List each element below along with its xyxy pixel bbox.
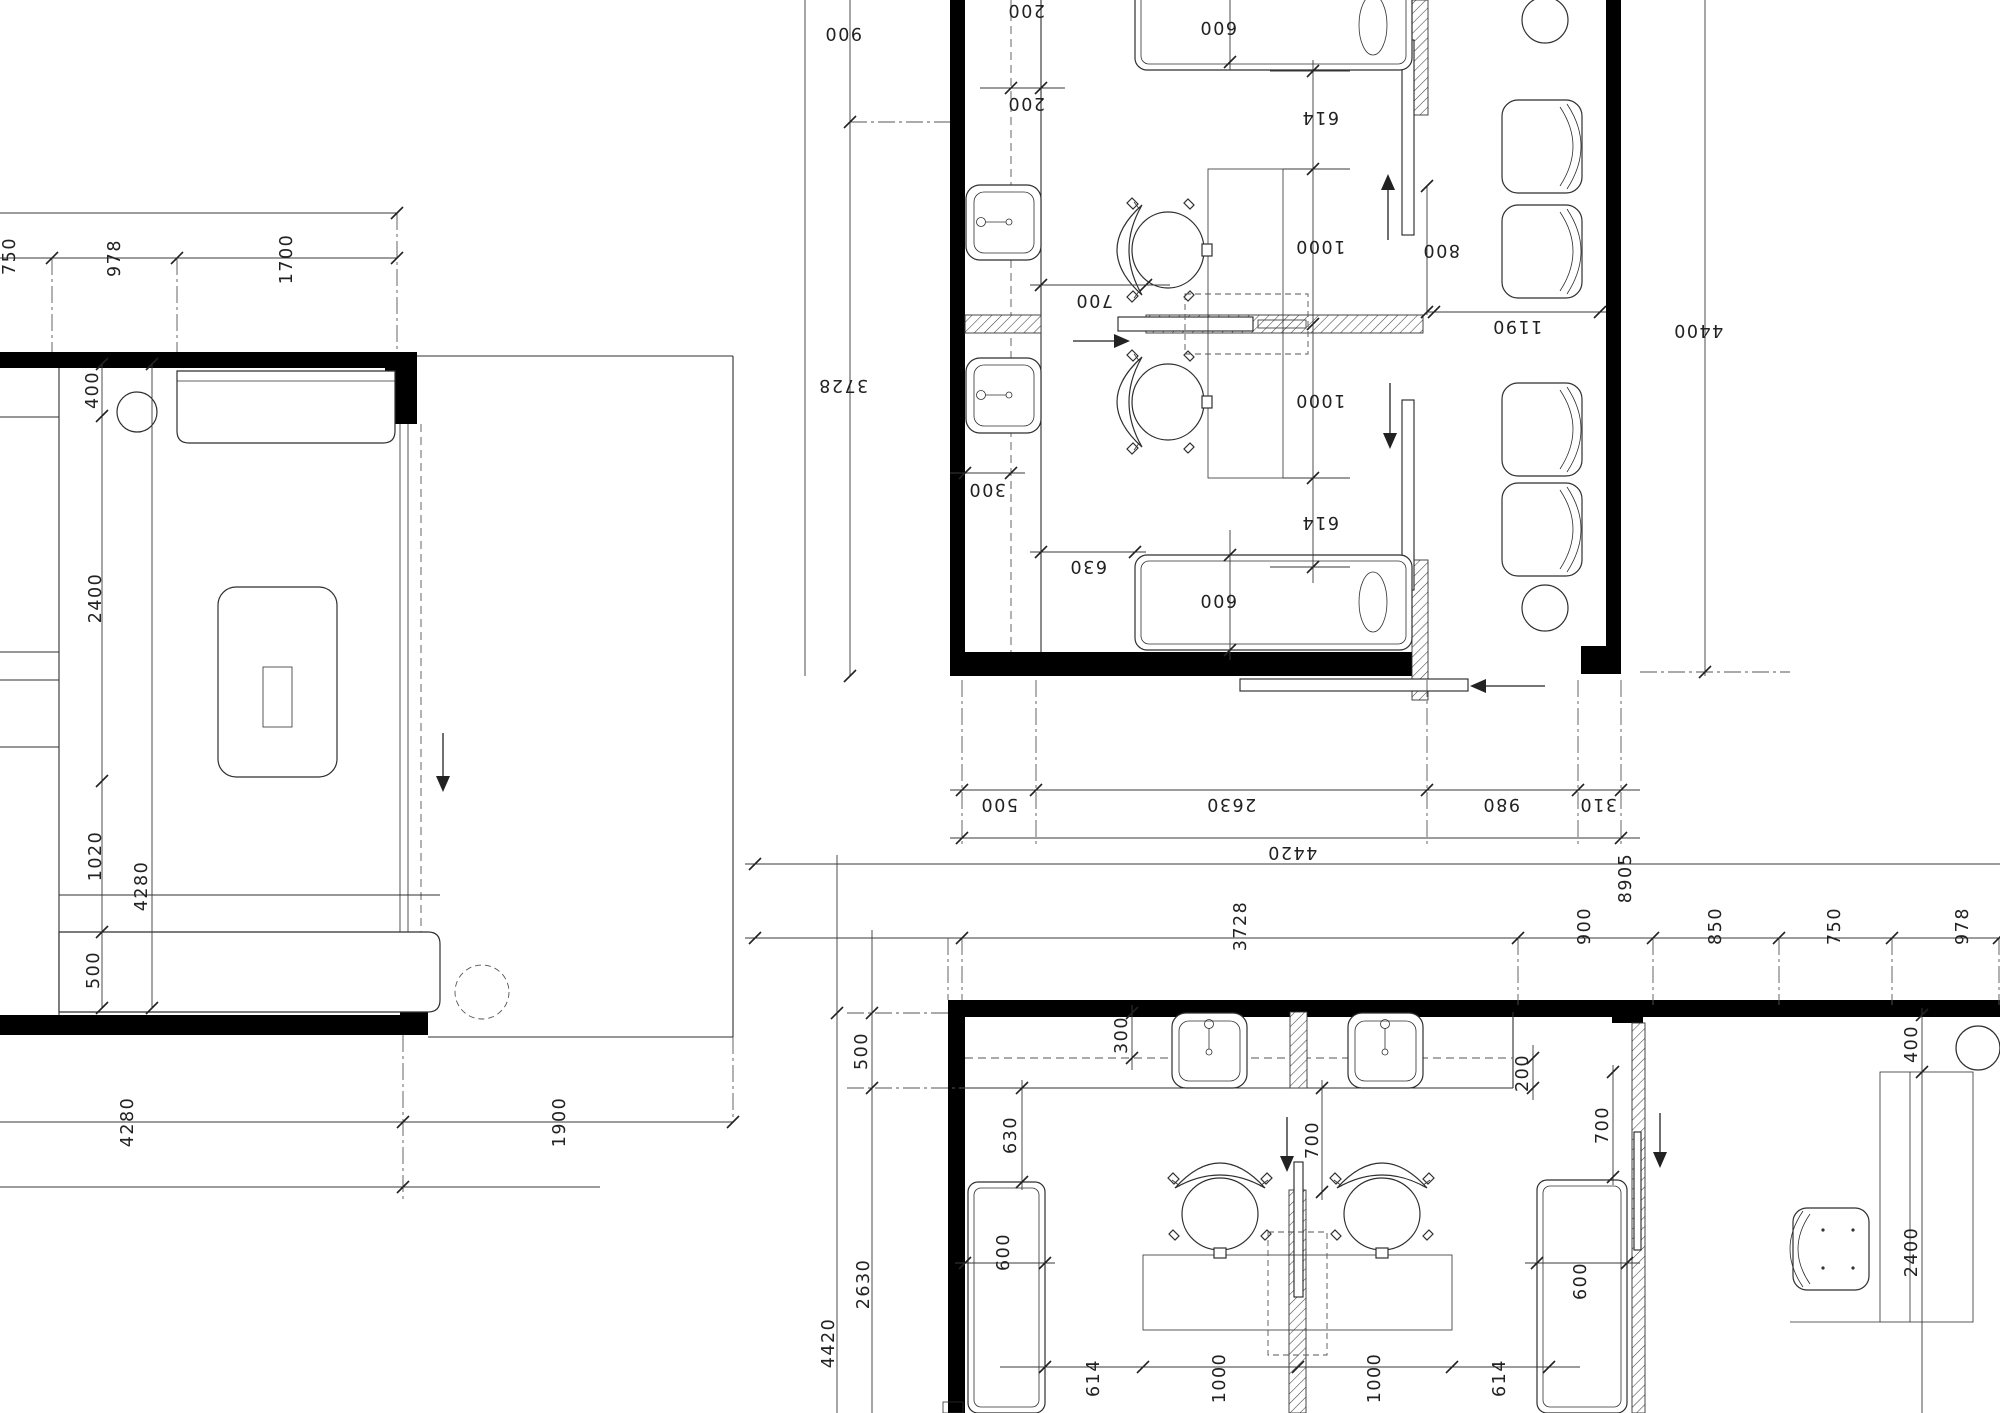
- dim-label-4420: 4420: [1267, 842, 1318, 862]
- dim-label-978: 978: [1953, 907, 1973, 945]
- wall-right: [1606, 0, 1621, 622]
- wall-corner-bottom-right: [1581, 646, 1621, 674]
- dim-label-4280: 4280: [132, 861, 152, 912]
- dim-label-700: 700: [1075, 290, 1113, 310]
- floorplan-sheet: 7509781700400240010205004280428019009003…: [0, 0, 2000, 1413]
- dim-label-3728: 3728: [818, 375, 869, 395]
- dim-label-400: 400: [1902, 1025, 1922, 1063]
- partition-hatch-stub: [965, 315, 1041, 333]
- dim-label-600: 600: [1199, 590, 1237, 610]
- dim-label-4400: 4400: [1673, 320, 1724, 340]
- dim-label-400: 400: [83, 371, 103, 409]
- bed-upper: [1135, 0, 1412, 70]
- dim-label-300: 300: [968, 479, 1006, 499]
- bed-left: [968, 1182, 1045, 1413]
- sink-right: [1348, 1013, 1423, 1088]
- door-threshold: [1240, 679, 1468, 691]
- dim-label-630: 630: [1001, 1116, 1021, 1154]
- dim-label-700: 700: [1303, 1121, 1323, 1159]
- dim-label-800: 800: [1422, 240, 1460, 260]
- dim-label-1900: 1900: [550, 1097, 570, 1148]
- side-table-top: [1522, 0, 1568, 43]
- dim-label-980: 980: [1482, 794, 1520, 814]
- dim-label-3728: 3728: [1231, 901, 1251, 952]
- dim-label-2630: 2630: [1206, 794, 1257, 814]
- couch-top: [177, 371, 395, 443]
- ceiling-light: [1956, 1026, 2000, 1070]
- dim-label-700: 700: [1593, 1106, 1613, 1144]
- dim-label-2400: 2400: [1902, 1227, 1922, 1278]
- sliding-door-leaf: [1118, 317, 1253, 331]
- dim-label-750: 750: [1825, 907, 1845, 945]
- right-door-leaf: [1634, 1132, 1641, 1250]
- dim-label-1700: 1700: [277, 234, 297, 285]
- dim-label-900: 900: [1575, 907, 1595, 945]
- wall-bottom: [950, 652, 1427, 676]
- side-table-bottom: [1522, 585, 1568, 631]
- dim-label-600: 600: [1571, 1262, 1591, 1300]
- dim-label-2630: 2630: [854, 1259, 874, 1310]
- desk-armchair: [1790, 1208, 1869, 1290]
- dim-label-4420: 4420: [819, 1318, 839, 1369]
- partition-header: [1612, 1000, 1643, 1023]
- floorplan-canvas: 7509781700400240010205004280428019009003…: [0, 0, 2000, 1413]
- dim-label-1000: 1000: [1365, 1353, 1385, 1404]
- stool-icon: [117, 392, 157, 432]
- sliding-door-leaf: [1294, 1162, 1303, 1297]
- dim-label-500: 500: [852, 1032, 872, 1070]
- dim-label-1000: 1000: [1295, 236, 1346, 256]
- sink-lower: [966, 358, 1041, 433]
- dim-label-614: 614: [1301, 512, 1339, 532]
- dim-label-2400: 2400: [86, 573, 106, 624]
- dim-label-1000: 1000: [1295, 390, 1346, 410]
- dim-label-614: 614: [1084, 1359, 1104, 1397]
- wall-top: [948, 1000, 2000, 1017]
- dim-label-310: 310: [1579, 794, 1617, 814]
- armchair-4: [1502, 483, 1582, 576]
- dim-label-750: 750: [0, 237, 20, 275]
- wall-bottom: [0, 1015, 403, 1035]
- dim-label-600: 600: [1199, 17, 1237, 37]
- dim-label-8905: 8905: [1616, 853, 1636, 904]
- bed-lower: [1135, 555, 1412, 650]
- dim-label-850: 850: [1706, 907, 1726, 945]
- dim-label-614: 614: [1490, 1359, 1510, 1397]
- armchair-2: [1502, 205, 1582, 298]
- dim-label-1000: 1000: [1210, 1353, 1230, 1404]
- dim-label-200: 200: [1007, 93, 1045, 113]
- dim-label-200: 200: [1007, 0, 1045, 20]
- sink-left: [1172, 1013, 1247, 1088]
- dim-label-630: 630: [1069, 556, 1107, 576]
- sink-upper: [966, 185, 1041, 260]
- wall-left: [950, 0, 965, 676]
- sofa-bottom: [59, 932, 440, 1012]
- dim-label-1020: 1020: [86, 831, 106, 882]
- dim-label-200: 200: [1513, 1054, 1533, 1092]
- dim-label-1190: 1190: [1492, 316, 1543, 336]
- dim-label-978: 978: [105, 239, 125, 277]
- dim-label-900: 900: [824, 23, 862, 43]
- wall-top: [0, 352, 385, 368]
- dim-label-300: 300: [1112, 1016, 1132, 1054]
- wall-left: [948, 1000, 965, 1413]
- dim-label-614: 614: [1301, 107, 1339, 127]
- dim-label-4280: 4280: [118, 1097, 138, 1148]
- dim-label-600: 600: [994, 1233, 1014, 1271]
- armchair-1: [1502, 100, 1582, 193]
- dim-label-500: 500: [84, 951, 104, 989]
- partition-hatch-stub: [1290, 1012, 1307, 1088]
- armchair-3: [1502, 383, 1582, 476]
- table: [218, 587, 337, 777]
- dim-label-500: 500: [980, 794, 1018, 814]
- wall-corner-fill: [1606, 622, 1621, 650]
